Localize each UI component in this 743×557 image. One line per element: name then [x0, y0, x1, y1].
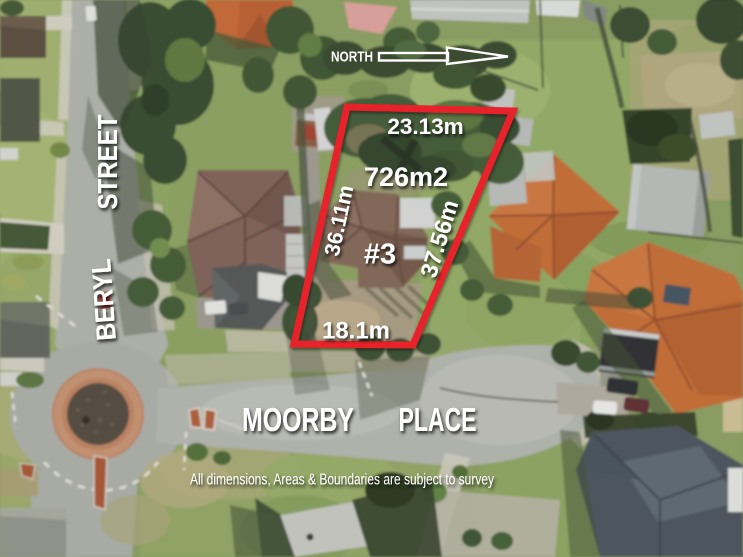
svg-text:MOORBY: MOORBY [242, 401, 354, 438]
svg-text:All dimensions, Areas & Bounda: All dimensions, Areas & Boundaries are s… [190, 472, 494, 489]
svg-text:726m2: 726m2 [364, 162, 448, 192]
svg-text:#3: #3 [364, 239, 396, 271]
svg-text:23.13m: 23.13m [387, 114, 463, 139]
svg-text:18.1m: 18.1m [322, 318, 390, 345]
svg-text:BERYL: BERYL [85, 258, 122, 342]
svg-text:STREET: STREET [92, 114, 123, 209]
svg-text:PLACE: PLACE [399, 401, 477, 438]
svg-text:NORTH: NORTH [331, 49, 373, 66]
